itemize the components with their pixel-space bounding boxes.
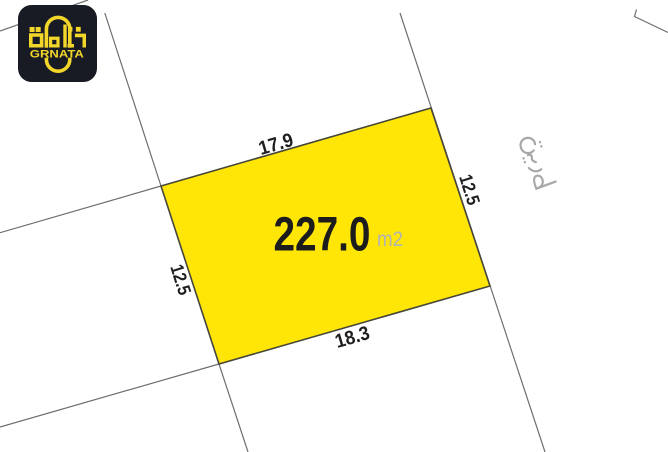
svg-text:227.0: 227.0	[274, 209, 371, 262]
svg-text:GRNATA: GRNATA	[30, 48, 84, 60]
svg-text:m2: m2	[377, 228, 403, 251]
